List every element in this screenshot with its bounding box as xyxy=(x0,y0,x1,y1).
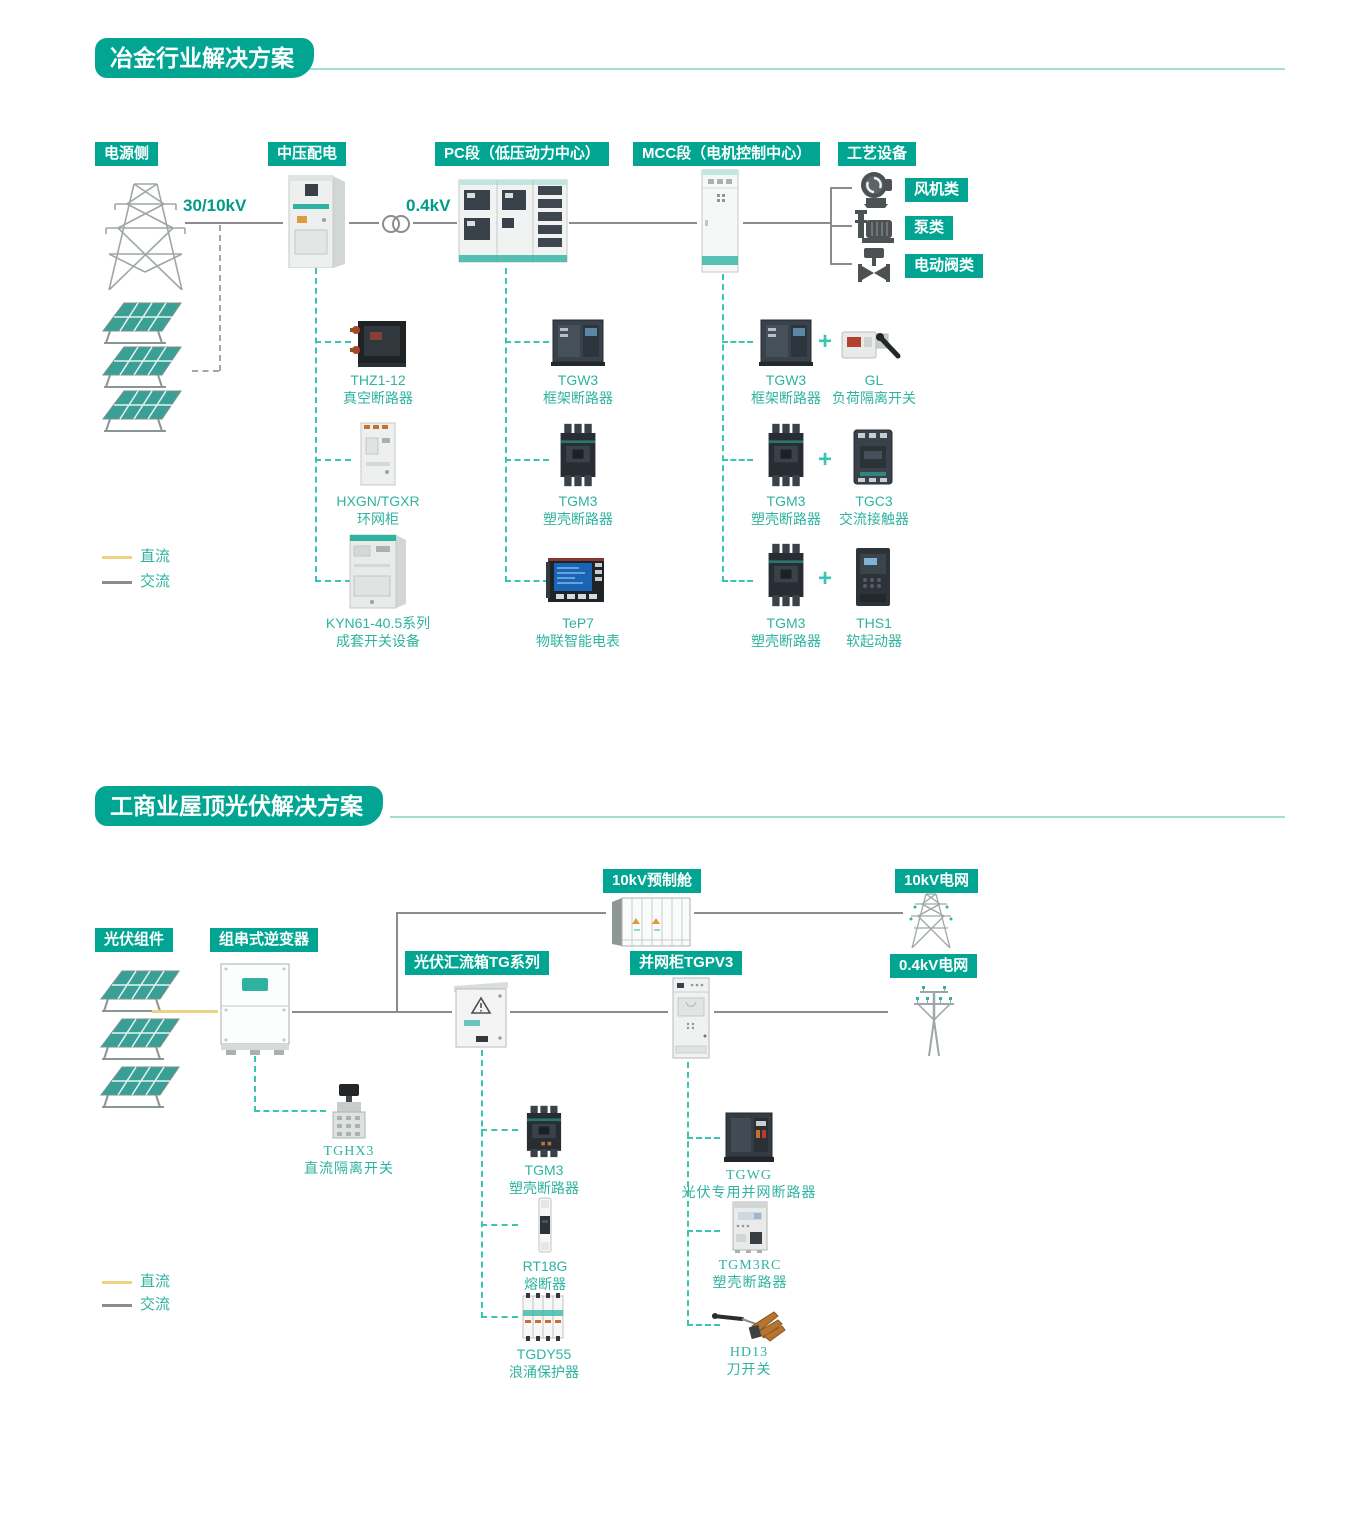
stage-tag-pc-section: PC段（低压动力中心） xyxy=(435,142,609,166)
product-desc: 环网柜 xyxy=(336,510,419,528)
tgdy55-spd-image xyxy=(521,1292,567,1342)
product-name: TGM3 xyxy=(543,492,613,510)
pump-icon xyxy=(852,208,896,246)
stage-tag-04kv-grid: 0.4kV电网 xyxy=(890,954,977,978)
product-label: THZ1-12 真空断路器 xyxy=(343,371,413,407)
inverter-branch-hdash xyxy=(254,1110,326,1112)
tghx3-dc-switch-image xyxy=(327,1082,371,1140)
legend-ac-line xyxy=(102,581,132,584)
voltage-label-lv: 0.4kV xyxy=(406,196,450,216)
product-name: TeP7 xyxy=(536,614,620,632)
hd13-knife-switch-image xyxy=(712,1306,786,1342)
legend-ac-label: 交流 xyxy=(140,1296,170,1314)
legend-dc-line xyxy=(102,1281,132,1284)
bus-tower-to-mv xyxy=(185,222,283,224)
inverter-branch-vdash xyxy=(254,1056,256,1112)
tgm3-breaker-image xyxy=(555,422,601,488)
pc-stub-1 xyxy=(505,341,549,343)
solar-panel-icon xyxy=(100,388,185,434)
mcc-stub-1 xyxy=(722,341,753,343)
ths1-soft-starter-image xyxy=(852,546,894,610)
product-label: TGDY55 浪涌保护器 xyxy=(509,1345,579,1381)
grid-tower-icon xyxy=(905,890,957,948)
valve-icon xyxy=(854,246,894,286)
product-name: TGWG xyxy=(682,1167,817,1185)
transmission-tower-icon xyxy=(98,178,193,290)
stage-tag-grid-cabinet: 并网柜TGPV3 xyxy=(630,951,742,975)
tgpv3-cabinet-image xyxy=(668,976,714,1062)
stage-tag-pv-modules: 光伏组件 xyxy=(95,928,173,952)
product-desc: 软起动器 xyxy=(846,632,902,650)
product-name: KYN61-40.5系列 xyxy=(326,614,430,632)
plus-sign: + xyxy=(818,567,832,591)
product-desc: 塑壳断路器 xyxy=(751,632,821,650)
product-label: THS1 软起动器 xyxy=(846,614,902,650)
product-desc: 塑壳断路器 xyxy=(751,510,821,528)
tgm3-breaker-image xyxy=(763,542,809,608)
bus-mcc-to-loads xyxy=(743,222,830,224)
tgwg-breaker-image xyxy=(722,1110,776,1164)
pv-feed-horizontal-dash xyxy=(192,370,219,372)
load-tag-fan: 风机类 xyxy=(905,178,968,202)
product-name: TGHX3 xyxy=(304,1143,394,1161)
product-desc: 直流隔离开关 xyxy=(304,1161,394,1179)
tep7-meter-image xyxy=(546,550,610,608)
section1-title: 冶金行业解决方案 xyxy=(95,38,314,78)
product-label: TGW3 框架断路器 xyxy=(543,371,613,407)
stage-tag-10kv-grid: 10kV电网 xyxy=(895,869,978,893)
stage-tag-10kv-cabin: 10kV预制舱 xyxy=(603,869,701,893)
mv-stub-2 xyxy=(315,459,351,461)
product-name: THS1 xyxy=(846,614,902,632)
product-label: TeP7 物联智能电表 xyxy=(536,614,620,650)
pc-stub-3 xyxy=(505,580,549,582)
product-name: TGC3 xyxy=(839,492,909,510)
product-label: TGM3RC 塑壳断路器 xyxy=(713,1257,788,1293)
product-desc: 塑壳断路器 xyxy=(543,510,613,528)
product-desc: 刀开关 xyxy=(727,1362,772,1380)
plus-sign: + xyxy=(818,448,832,472)
product-desc: 框架断路器 xyxy=(543,389,613,407)
stage-tag-mv-distribution: 中压配电 xyxy=(268,142,346,166)
product-name: TGM3 xyxy=(751,492,821,510)
section2-rule xyxy=(390,816,1285,818)
product-name: HD13 xyxy=(727,1344,772,1362)
pc-products-branch xyxy=(505,268,507,582)
tgw3-breaker-image xyxy=(758,316,814,368)
product-label: TGC3 交流接触器 xyxy=(839,492,909,528)
ac-line-riser-to-cabin xyxy=(397,912,606,914)
stage-tag-process-equipment: 工艺设备 xyxy=(838,142,916,166)
ac-line-cabin-to-grid xyxy=(694,912,903,914)
distribution-pole-icon xyxy=(906,982,962,1056)
solar-panel-icon xyxy=(98,968,183,1014)
grid-cab-stub-1 xyxy=(687,1137,720,1139)
combiner-stub-1 xyxy=(481,1129,518,1131)
solar-panel-icon xyxy=(98,1064,183,1110)
legend-dc-label: 直流 xyxy=(140,1273,170,1291)
legend-dc-line xyxy=(102,556,132,559)
product-desc: 熔断器 xyxy=(523,1275,568,1293)
combiner-branch-vdash xyxy=(481,1050,483,1318)
gl-switch-image xyxy=(840,322,902,364)
ac-riser-to-cabin xyxy=(396,912,398,1012)
product-label: TGM3 塑壳断路器 xyxy=(751,614,821,650)
product-desc: 塑壳断路器 xyxy=(509,1179,579,1197)
plus-sign: + xyxy=(818,330,832,354)
product-desc: 负荷隔离开关 xyxy=(832,389,916,407)
product-name: GL xyxy=(832,371,916,389)
loads-stub-pump xyxy=(830,225,852,227)
loads-stub-fan xyxy=(830,187,852,189)
hxgn-ring-main-unit-image xyxy=(356,420,400,488)
product-label: HD13 刀开关 xyxy=(727,1344,772,1380)
combiner-stub-3 xyxy=(481,1316,518,1318)
legend-ac-label: 交流 xyxy=(140,573,170,591)
product-label: TGM3 塑壳断路器 xyxy=(751,492,821,528)
solar-panel-icon xyxy=(100,344,185,390)
product-label: TGWG 光伏专用并网断路器 xyxy=(682,1167,817,1203)
transformer-symbol xyxy=(379,213,413,235)
grid-cab-stub-2 xyxy=(687,1230,720,1232)
product-label: TGM3 塑壳断路器 xyxy=(543,492,613,528)
bus-transformer-to-pc xyxy=(413,222,457,224)
product-desc: 真空断路器 xyxy=(343,389,413,407)
bus-pc-to-mcc xyxy=(569,222,697,224)
stage-tag-string-inverter: 组串式逆变器 xyxy=(210,928,318,952)
ac-line-cabinet-to-pole xyxy=(714,1011,888,1013)
mcc-stub-2 xyxy=(722,459,753,461)
loads-stub-valve xyxy=(830,263,852,265)
product-label: HXGN/TGXR 环网柜 xyxy=(336,492,419,528)
thz1-12-breaker-image xyxy=(346,318,410,368)
load-tag-pump: 泵类 xyxy=(905,216,953,240)
solar-panel-icon xyxy=(100,300,185,346)
product-name: TGW3 xyxy=(751,371,821,389)
combiner-stub-2 xyxy=(481,1224,518,1226)
product-desc: 浪涌保护器 xyxy=(509,1363,579,1381)
pc-stub-2 xyxy=(505,459,549,461)
product-label: GL 负荷隔离开关 xyxy=(832,371,916,407)
dc-line-panels-to-inverter xyxy=(152,1010,218,1013)
tgm3-breaker-image xyxy=(763,422,809,488)
tgc3-contactor-image xyxy=(850,426,896,488)
tgw3-breaker-image xyxy=(550,316,606,368)
product-name: TGM3RC xyxy=(713,1257,788,1275)
product-name: TGW3 xyxy=(543,371,613,389)
product-label: RT18G 熔断器 xyxy=(523,1257,568,1293)
stage-tag-power-source: 电源侧 xyxy=(95,142,158,166)
load-tag-valve: 电动阀类 xyxy=(905,254,983,278)
pc-cabinets-image xyxy=(457,172,569,268)
ac-line-inverter-to-combiner xyxy=(292,1011,452,1013)
product-name: HXGN/TGXR xyxy=(336,492,419,510)
legend-ac-line xyxy=(102,1304,132,1307)
product-name: THZ1-12 xyxy=(343,371,413,389)
solar-panel-icon xyxy=(98,1016,183,1062)
product-desc: 成套开关设备 xyxy=(326,632,430,650)
section2-title: 工商业屋顶光伏解决方案 xyxy=(95,786,383,826)
product-desc: 塑壳断路器 xyxy=(713,1275,788,1293)
tgm3-breaker-image xyxy=(521,1104,567,1158)
product-label: TGW3 框架断路器 xyxy=(751,371,821,407)
mv-products-branch xyxy=(315,268,317,582)
product-desc: 交流接触器 xyxy=(839,510,909,528)
solutions-page: 冶金行业解决方案 电源侧 中压配电 PC段（低压动力中心） MCC段（电机控制中… xyxy=(0,0,1350,1528)
rt18g-fuse-image xyxy=(534,1196,556,1254)
product-label: TGM3 塑壳断路器 xyxy=(509,1161,579,1197)
product-label: KYN61-40.5系列 成套开关设备 xyxy=(326,614,430,650)
ac-line-combiner-to-cabinet xyxy=(510,1011,668,1013)
mv-cabinet-image xyxy=(283,172,349,268)
combiner-box-image xyxy=(452,980,510,1050)
pv-feed-vertical-dash xyxy=(219,225,221,371)
product-label: TGHX3 直流隔离开关 xyxy=(304,1143,394,1179)
kyn61-switchgear-image xyxy=(346,532,410,610)
mcc-products-branch xyxy=(722,274,724,582)
voltage-label-hv: 30/10kV xyxy=(183,196,246,216)
bus-mv-to-transformer xyxy=(349,222,379,224)
legend-dc-label: 直流 xyxy=(140,548,170,566)
product-name: TGM3 xyxy=(751,614,821,632)
stage-tag-combiner-box: 光伏汇流箱TG系列 xyxy=(405,951,549,975)
stage-tag-mcc-section: MCC段（电机控制中心） xyxy=(633,142,820,166)
tgm3rc-breaker-image xyxy=(726,1200,774,1254)
product-name: RT18G xyxy=(523,1257,568,1275)
product-desc: 物联智能电表 xyxy=(536,632,620,650)
string-inverter-image xyxy=(218,962,292,1056)
fan-icon xyxy=(854,170,896,208)
prefab-cabin-image xyxy=(606,894,694,950)
mcc-stub-3 xyxy=(722,580,753,582)
product-name: TGM3 xyxy=(509,1161,579,1179)
mcc-cabinet-image xyxy=(697,168,743,274)
product-desc: 框架断路器 xyxy=(751,389,821,407)
section1-rule xyxy=(300,68,1285,70)
product-name: TGDY55 xyxy=(509,1345,579,1363)
